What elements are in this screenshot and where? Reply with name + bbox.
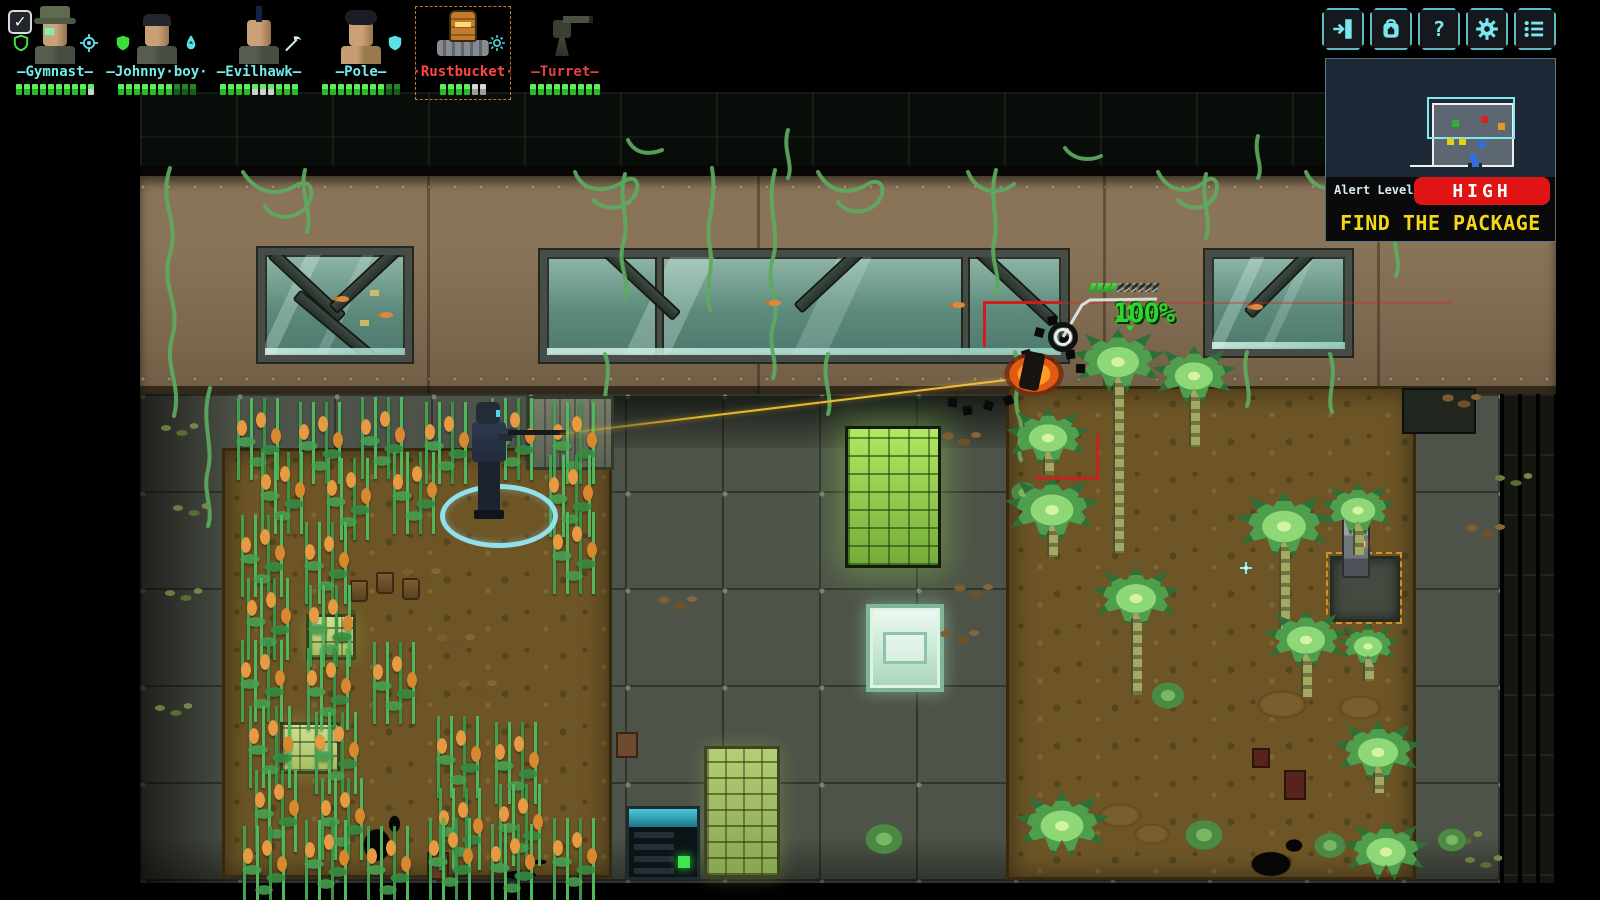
prop-elevator xyxy=(626,806,700,880)
target-health-bar xyxy=(1088,283,1159,292)
corn-patch xyxy=(296,820,356,900)
debris xyxy=(1460,520,1508,542)
hp-segment xyxy=(150,84,156,95)
unit-portrait xyxy=(23,8,87,64)
debris xyxy=(936,428,984,450)
unit-name: —Turret— xyxy=(514,64,616,80)
hp-segment xyxy=(174,84,180,95)
target-bracket-bottom xyxy=(1036,477,1099,480)
minimap-dot xyxy=(1472,160,1479,167)
squad-unit-pole[interactable]: —Pole— xyxy=(310,4,412,100)
hp-segment xyxy=(594,84,600,95)
minimap-wall-line xyxy=(1410,165,1434,167)
leaf-debris xyxy=(160,585,208,607)
palm-tree xyxy=(1152,346,1236,406)
settings-button[interactable] xyxy=(1466,8,1508,50)
hp-segment xyxy=(40,84,46,95)
fish xyxy=(768,300,781,306)
minimap-dot xyxy=(1447,138,1454,145)
leaf-debris xyxy=(150,700,198,722)
corn-patch xyxy=(234,826,294,900)
fish xyxy=(336,296,349,302)
ink-splat xyxy=(1240,845,1302,883)
hp-segment xyxy=(142,84,148,95)
unit-name: —Gymnast— xyxy=(4,64,106,80)
top-buttons-bar: ? xyxy=(1322,8,1556,50)
minimap-dot xyxy=(1498,123,1505,130)
unit-health-bar xyxy=(208,84,310,95)
palm-tree xyxy=(1092,567,1180,630)
squad-roster: —Gymnast— —Johnny·boy· —Evilhawk— —Pol xyxy=(4,4,616,100)
hp-segment xyxy=(268,84,274,95)
unit-health-bar xyxy=(514,84,616,95)
hp-segment xyxy=(244,84,250,95)
rifle xyxy=(508,430,566,435)
alert-level-value: HIGH xyxy=(1452,181,1511,202)
squad-unit-turret[interactable]: —Turret— xyxy=(514,4,616,100)
prop-crate3 xyxy=(1252,748,1270,768)
minimap-dot xyxy=(1481,116,1488,123)
unit-portrait xyxy=(431,8,495,64)
hp-segment xyxy=(440,84,446,95)
price-tag xyxy=(370,290,379,296)
shield-cyan-icon xyxy=(386,34,404,52)
minimap-dot xyxy=(1478,141,1485,148)
unit-portrait xyxy=(125,8,189,64)
hp-segment xyxy=(24,84,30,95)
hp-segment xyxy=(330,84,336,95)
debris xyxy=(1436,390,1484,412)
minimap-dot xyxy=(1459,138,1466,145)
smoke-particle xyxy=(962,405,972,415)
smoke-particle xyxy=(983,400,994,411)
menu-button[interactable] xyxy=(1514,8,1556,50)
debris xyxy=(430,630,478,652)
hp-segment xyxy=(464,84,470,95)
unit-name: —Evilhawk— xyxy=(208,64,310,80)
leaf-debris xyxy=(168,500,216,522)
hp-segment xyxy=(48,84,54,95)
shrub xyxy=(858,818,910,860)
hp-segment xyxy=(158,84,164,95)
hp-segment xyxy=(228,84,234,95)
prop-sparkle xyxy=(1240,562,1252,574)
hp-segment xyxy=(88,84,94,95)
door-exit-icon xyxy=(1330,16,1356,42)
list-icon xyxy=(1522,16,1548,42)
hp-segment xyxy=(190,84,196,95)
hp-segment xyxy=(134,84,140,95)
dirt-mound xyxy=(1330,691,1390,724)
debris xyxy=(934,626,982,648)
smoke-particle xyxy=(1076,364,1085,373)
hp-segment xyxy=(346,84,352,95)
select-all-checkbox[interactable]: ✓ xyxy=(8,10,32,34)
hp-segment xyxy=(354,84,360,95)
palm-tree xyxy=(1320,483,1396,538)
hp-segment xyxy=(378,84,384,95)
hit-chance-label: 100% xyxy=(1086,298,1174,329)
alert-level-badge: HIGH xyxy=(1414,177,1550,205)
hp-segment xyxy=(456,84,462,95)
hp-segment xyxy=(386,84,392,95)
hp-segment xyxy=(338,84,344,95)
hp-segment xyxy=(118,84,124,95)
hp-segment xyxy=(538,84,544,95)
hp-segment xyxy=(16,84,22,95)
target-bracket-right xyxy=(1096,434,1099,480)
unit-portrait xyxy=(329,8,393,64)
shrub xyxy=(1432,824,1472,856)
leaf-debris xyxy=(156,420,204,442)
move-crosshair-icon xyxy=(1086,302,1110,326)
unit-name: —Johnny·boy· xyxy=(106,64,208,80)
crosshair-icon xyxy=(80,34,98,52)
backpack-icon xyxy=(1378,16,1404,42)
hp-segment xyxy=(126,84,132,95)
debris xyxy=(396,564,444,586)
shrub xyxy=(1145,677,1191,714)
unit-name: —Pole— xyxy=(310,64,412,80)
hp-segment xyxy=(260,84,266,95)
corn-patch xyxy=(364,642,424,724)
alert-level-label: Alert Level xyxy=(1334,183,1413,197)
corn-patch xyxy=(544,818,604,900)
price-tag xyxy=(360,320,369,326)
unit-health-bar xyxy=(106,84,208,95)
game-viewport[interactable]: 100% ✓ —Gymnast— —Johnny·boy· —Evilhawk— xyxy=(0,0,1600,900)
palm-tree xyxy=(1015,792,1109,860)
target-bracket-top xyxy=(983,301,1061,304)
corn-patch xyxy=(358,826,418,900)
aim-reticle xyxy=(1048,322,1078,352)
unit-portrait xyxy=(533,8,597,64)
palm-tree xyxy=(1236,492,1332,561)
corn-patch xyxy=(482,824,542,900)
hp-segment xyxy=(448,84,454,95)
prop-pallet xyxy=(704,746,780,878)
enemy-explosion[interactable] xyxy=(998,348,1070,400)
squad-unit-johnnyboy[interactable]: —Johnny·boy· xyxy=(106,4,208,100)
exit-button[interactable] xyxy=(1322,8,1364,50)
target-bracket-left xyxy=(983,301,986,347)
hp-segment xyxy=(236,84,242,95)
debris xyxy=(652,592,700,614)
status-panel: Alert Level HIGH FIND THE PACKAGE xyxy=(1325,58,1556,242)
prop-crate xyxy=(616,732,638,758)
smoke-particle xyxy=(948,398,958,408)
corn-patch xyxy=(420,818,480,900)
hp-segment xyxy=(530,84,536,95)
hp-segment xyxy=(166,84,172,95)
fish xyxy=(1250,304,1263,310)
hp-segment xyxy=(562,84,568,95)
hp-segment xyxy=(276,84,282,95)
hp-segment xyxy=(472,84,478,95)
smoke-particle xyxy=(1034,327,1045,338)
minimap-dot xyxy=(1452,120,1459,127)
squad-unit-evilhawk[interactable]: —Evilhawk— xyxy=(208,4,310,100)
debris xyxy=(452,676,500,698)
palm-tree xyxy=(1264,610,1348,670)
fish xyxy=(380,312,393,318)
hp-segment xyxy=(578,84,584,95)
hp-segment xyxy=(182,84,188,95)
unit-name: ·Rustbucket· xyxy=(412,64,514,80)
palm-tree xyxy=(1072,329,1164,395)
gear-burst-icon xyxy=(488,34,506,52)
hp-segment xyxy=(570,84,576,95)
hp-segment xyxy=(252,84,258,95)
hp-segment xyxy=(32,84,38,95)
hp-segment xyxy=(480,84,486,95)
unit-health-bar xyxy=(412,84,514,95)
hp-segment xyxy=(64,84,70,95)
prop-crate3 xyxy=(1284,770,1306,800)
hp-segment xyxy=(362,84,368,95)
prop-pot xyxy=(376,572,394,594)
palm-tree xyxy=(1337,624,1399,669)
hp-segment xyxy=(554,84,560,95)
pickaxe-icon xyxy=(284,34,302,52)
hp-segment xyxy=(394,84,400,95)
unit-health-bar xyxy=(4,84,106,95)
question-icon: ? xyxy=(1426,16,1452,42)
hp-segment xyxy=(370,84,376,95)
objective-text: FIND THE PACKAGE xyxy=(1326,211,1555,235)
leaf-debris xyxy=(1490,470,1538,492)
prop-btn xyxy=(678,856,690,868)
palm-tree xyxy=(1334,721,1422,784)
palm-tree xyxy=(1343,821,1429,883)
unit-health-bar xyxy=(310,84,412,95)
palm-tree xyxy=(1006,408,1090,468)
hp-segment xyxy=(72,84,78,95)
droplet-icon xyxy=(182,34,200,52)
hp-segment xyxy=(546,84,552,95)
debris xyxy=(948,580,996,602)
hp-segment xyxy=(322,84,328,95)
shrub xyxy=(1178,814,1230,856)
unit-portrait xyxy=(227,8,291,64)
svg-text:?: ? xyxy=(1433,17,1445,41)
hp-segment xyxy=(80,84,86,95)
prop-server xyxy=(845,426,941,568)
hp-segment xyxy=(586,84,592,95)
minimap-viewport xyxy=(1427,97,1515,139)
palm-tree xyxy=(1005,476,1099,544)
hp-segment xyxy=(292,84,298,95)
hp-segment xyxy=(56,84,62,95)
hp-segment xyxy=(220,84,226,95)
inventory-button[interactable] xyxy=(1370,8,1412,50)
corn-patch xyxy=(428,716,488,798)
gear-icon xyxy=(1474,16,1500,42)
prop-glass xyxy=(866,604,944,692)
fish xyxy=(952,302,965,308)
squad-unit-rustbucket[interactable]: ·Rustbucket· xyxy=(412,4,514,100)
help-button[interactable]: ? xyxy=(1418,8,1460,50)
selected-soldier[interactable] xyxy=(430,392,580,552)
hp-segment xyxy=(284,84,290,95)
